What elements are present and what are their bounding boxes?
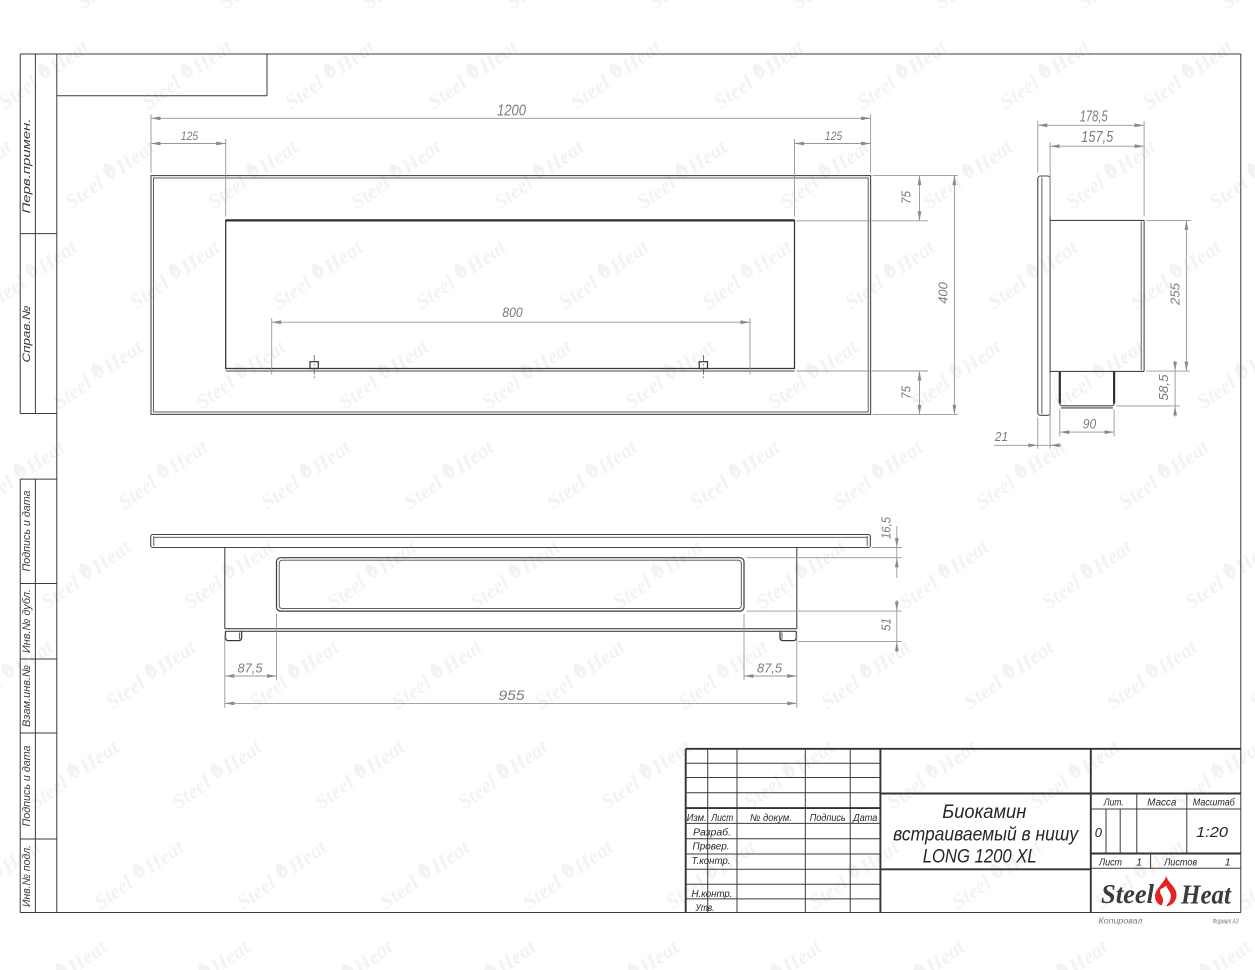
svg-text:Steel: Steel xyxy=(1101,879,1154,909)
svg-text:Утв.: Утв. xyxy=(695,903,715,914)
svg-text:LONG 1200 XL: LONG 1200 XL xyxy=(923,847,1037,868)
svg-text:125: 125 xyxy=(181,131,199,143)
svg-text:Биокамин: Биокамин xyxy=(942,802,1027,823)
svg-text:16,5: 16,5 xyxy=(879,517,893,539)
svg-text:Подпись и дата: Подпись и дата xyxy=(21,491,33,572)
svg-text:1: 1 xyxy=(1136,856,1142,868)
svg-text:Взам.инв.№: Взам.инв.№ xyxy=(21,665,33,727)
svg-text:58,5: 58,5 xyxy=(1156,374,1171,401)
svg-text:Подпись и дата: Подпись и дата xyxy=(21,746,33,827)
svg-text:Heat: Heat xyxy=(1180,880,1232,910)
svg-text:125: 125 xyxy=(825,131,843,143)
svg-text:800: 800 xyxy=(502,304,523,320)
svg-text:Подпись: Подпись xyxy=(810,813,846,824)
svg-text:90: 90 xyxy=(1083,416,1097,431)
svg-text:Лист: Лист xyxy=(710,813,733,824)
svg-text:87,5: 87,5 xyxy=(238,660,264,675)
svg-text:51: 51 xyxy=(879,618,893,631)
svg-text:157,5: 157,5 xyxy=(1081,129,1113,146)
svg-text:Провер.: Провер. xyxy=(693,842,730,853)
svg-text:Инв.№ дубл.: Инв.№ дубл. xyxy=(21,589,33,653)
svg-text:Н.контр.: Н.контр. xyxy=(692,889,733,900)
svg-text:400: 400 xyxy=(936,282,951,304)
svg-text:955: 955 xyxy=(499,687,525,703)
svg-text:75: 75 xyxy=(899,386,913,399)
svg-text:1:20: 1:20 xyxy=(1196,824,1229,841)
svg-text:Листов: Листов xyxy=(1163,856,1197,868)
svg-text:Изм.: Изм. xyxy=(687,813,707,824)
svg-text:Копировал: Копировал xyxy=(1099,917,1144,926)
svg-text:255: 255 xyxy=(1168,282,1183,306)
svg-text:1200: 1200 xyxy=(497,103,526,120)
svg-text:75: 75 xyxy=(899,191,913,204)
svg-text:Масса: Масса xyxy=(1147,797,1176,808)
svg-text:Дата: Дата xyxy=(852,813,877,824)
svg-text:Разраб.: Разраб. xyxy=(693,826,731,838)
svg-text:Перв.примен.: Перв.примен. xyxy=(21,119,33,214)
svg-text:21: 21 xyxy=(994,429,1008,444)
svg-text:Инв.№ подл.: Инв.№ подл. xyxy=(21,845,33,907)
svg-text:87,5: 87,5 xyxy=(757,660,783,675)
svg-text:Формат А3: Формат А3 xyxy=(1213,919,1239,926)
svg-text:0: 0 xyxy=(1095,825,1103,840)
svg-text:178,5: 178,5 xyxy=(1080,109,1108,126)
svg-text:Т.контр.: Т.контр. xyxy=(692,856,731,867)
svg-text:Масштаб: Масштаб xyxy=(1193,796,1235,808)
svg-text:Лит.: Лит. xyxy=(1103,797,1124,808)
svg-text:Лист: Лист xyxy=(1098,856,1122,868)
svg-text:Справ.№: Справ.№ xyxy=(21,305,33,362)
svg-text:встраиваемый в нишу: встраиваемый в нишу xyxy=(893,825,1079,846)
svg-text:№ докум.: № докум. xyxy=(750,813,792,824)
svg-text:1: 1 xyxy=(1225,856,1231,868)
